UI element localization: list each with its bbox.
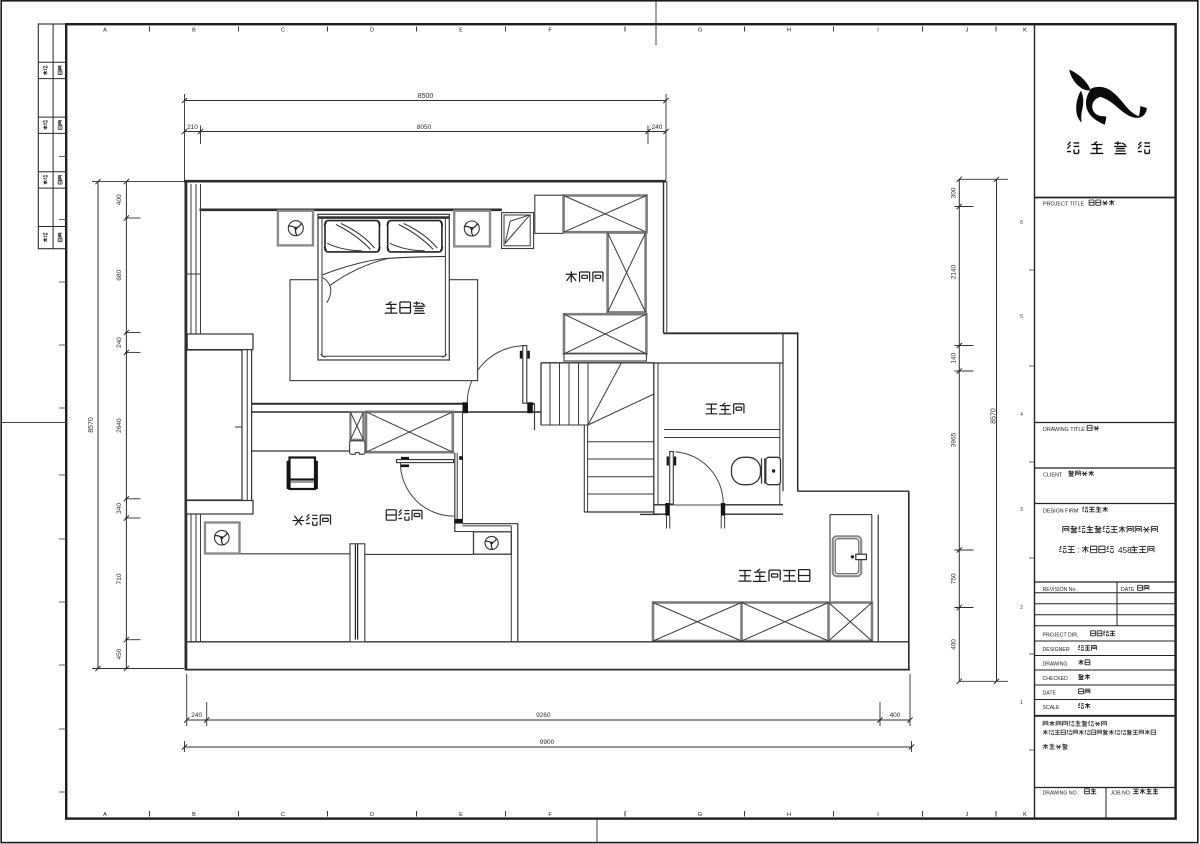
svg-text:240: 240 [652,124,663,131]
svg-text:400: 400 [950,639,957,650]
svg-text::: : [1078,546,1080,555]
svg-text:PROJECT TITLE: PROJECT TITLE [1043,202,1085,208]
svg-text:CHECKED: CHECKED [1043,676,1069,682]
svg-text:9260: 9260 [536,712,551,719]
svg-text:3: 3 [1020,507,1023,513]
svg-text:CLIENT: CLIENT [1043,473,1063,479]
svg-text:F: F [548,28,552,34]
svg-text:K: K [1023,812,1027,818]
svg-text:PROJECT DIR.: PROJECT DIR. [1043,633,1079,639]
svg-text:B: B [192,28,196,34]
svg-text:6: 6 [1020,220,1023,226]
svg-text:240: 240 [191,712,202,719]
svg-text:H: H [787,812,791,818]
svg-text:2: 2 [1020,605,1023,611]
svg-text:2640: 2640 [116,418,123,433]
svg-text:C: C [281,812,285,818]
svg-text:F: F [548,812,552,818]
svg-text:I: I [877,812,879,818]
svg-text:DRAWING NO.: DRAWING NO. [1043,791,1079,797]
svg-text:J: J [966,812,969,818]
svg-text:8570: 8570 [88,417,95,433]
svg-text:I: I [877,28,879,34]
svg-text:DRAWING: DRAWING [1043,661,1068,667]
svg-text:JOB NO.: JOB NO. [1111,791,1132,797]
svg-text:2140: 2140 [950,264,957,279]
svg-text:8500: 8500 [418,93,434,100]
svg-text:300: 300 [950,187,957,198]
svg-text:REVISION No.: REVISION No. [1043,587,1077,593]
svg-text:DATE: DATE [1043,690,1057,696]
svg-text:3965: 3965 [950,432,957,447]
svg-text:750: 750 [950,573,957,584]
svg-text:8050: 8050 [417,124,432,131]
svg-text:450: 450 [116,648,123,659]
svg-text:5: 5 [1020,314,1023,320]
svg-text:C: C [281,28,285,34]
svg-text:D: D [370,812,374,818]
svg-text:680: 680 [116,269,123,280]
svg-text:240: 240 [116,337,123,348]
svg-text:G: G [698,28,702,34]
svg-text:DESIGN FIRM: DESIGN FIRM [1043,509,1079,515]
svg-text:H: H [787,28,791,34]
svg-text:4: 4 [1020,412,1023,418]
svg-text:340: 340 [116,503,123,514]
svg-text:D: D [370,28,374,34]
svg-text:DESIGNER: DESIGNER [1043,647,1070,653]
svg-text:SCALE: SCALE [1043,705,1061,711]
svg-text:A: A [103,28,107,34]
svg-text:400: 400 [116,194,123,205]
svg-text:J: J [966,28,969,34]
svg-text:G: G [698,812,702,818]
svg-text:9900: 9900 [540,739,555,746]
svg-text:E: E [459,812,463,818]
svg-text:8570: 8570 [990,408,997,424]
svg-text:710: 710 [116,573,123,584]
svg-text:K: K [1023,28,1027,34]
svg-text:140: 140 [950,352,957,363]
svg-text:B: B [192,812,196,818]
svg-text:E: E [459,28,463,34]
svg-text:210: 210 [187,124,198,131]
svg-text:DATE: DATE [1121,587,1135,593]
svg-text:400: 400 [890,712,901,719]
svg-text:458: 458 [1118,546,1132,555]
svg-text:1: 1 [1020,700,1023,706]
svg-text:DRAWING TITLE: DRAWING TITLE [1043,427,1085,433]
svg-text:A: A [103,812,107,818]
